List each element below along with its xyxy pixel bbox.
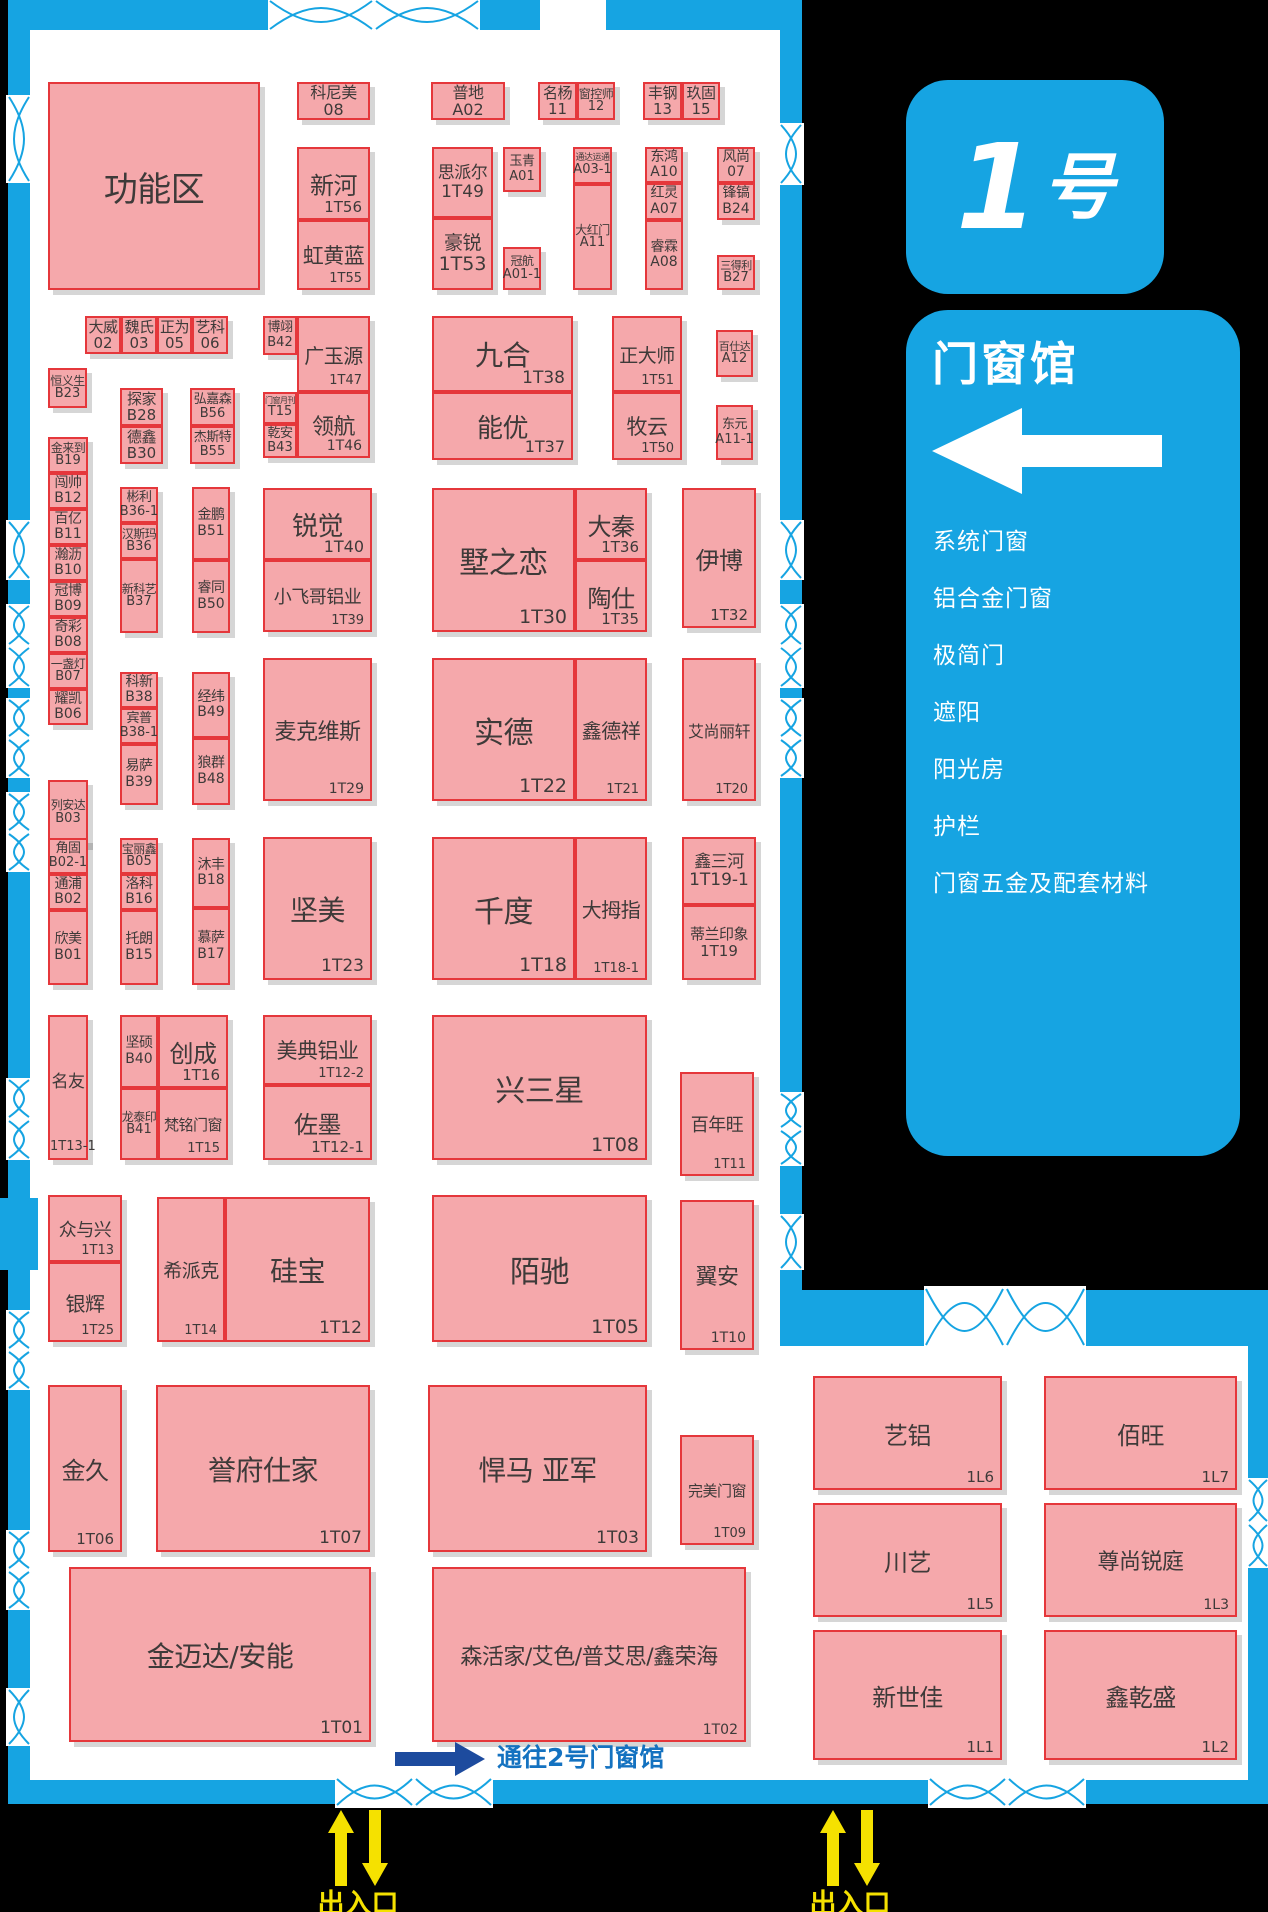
booth-1T40: 锐觉1T40 — [263, 488, 372, 560]
wall — [1086, 1290, 1252, 1346]
booth-name: 睿同 — [198, 581, 225, 596]
booth-code: 1T20 — [715, 782, 748, 797]
booth-code: 03 — [129, 335, 148, 351]
booth-code: 1T23 — [321, 956, 364, 976]
booth-1T02: 森活家/艾色/普艾思/鑫荣海1T02 — [432, 1567, 746, 1742]
booth-code: 1T47 — [329, 373, 362, 388]
exhibition-floor-plan: 1 号 门窗馆 系统门窗铝合金门窗极简门遮阳阳光房护栏门窗五金及配套材料 通往2… — [0, 0, 1268, 1912]
booth-code: B28 — [127, 407, 156, 423]
booth-B15: 托朗B15 — [120, 910, 158, 985]
booth-code: B23 — [55, 387, 80, 401]
booth-name: 艺科 — [195, 319, 224, 335]
booth-13: 丰钢13 — [643, 82, 682, 120]
booth-1T08: 兴三星1T08 — [432, 1015, 647, 1160]
booth-1T19: 蒂兰印象1T19 — [682, 905, 756, 980]
booth-code: 1T15 — [187, 1141, 220, 1156]
booth-B38: 科新B38 — [120, 672, 158, 708]
booth-name: 森活家/艾色/普艾思/鑫荣海 — [434, 1569, 744, 1740]
booth-code: 1L5 — [967, 1595, 994, 1613]
hall-number: 1 — [956, 128, 1038, 246]
booth-name: 鑫德祥 — [577, 660, 645, 799]
door-opening — [6, 520, 32, 580]
door-opening — [778, 520, 804, 580]
door-opening — [6, 1530, 32, 1610]
door-opening — [6, 95, 32, 183]
booth-1T18-1: 大拇指1T18-1 — [575, 837, 647, 980]
booth-code: 1L1 — [967, 1738, 994, 1756]
booth-1T38: 九合1T38 — [432, 316, 573, 392]
booth-name: 宾普 — [126, 712, 151, 726]
door-opening — [335, 1776, 493, 1808]
booth-code: B09 — [54, 599, 81, 614]
booth-name: 科新 — [126, 675, 153, 690]
booth-B18: 沐丰B18 — [192, 838, 230, 908]
booth-1T47: 广玉源1T47 — [297, 316, 370, 392]
booth-name: 风尚 — [723, 150, 750, 165]
booth-code: 1T11 — [713, 1157, 746, 1172]
booth-B56: 弘嘉森B56 — [190, 388, 235, 426]
down-arrow-icon — [854, 1810, 880, 1886]
booth-B55: 杰斯特B55 — [190, 426, 235, 464]
booth-code: B50 — [197, 597, 224, 612]
booth-name: 名友 — [50, 1017, 86, 1142]
booth-code: 06 — [200, 335, 219, 351]
booth-B19: 金来到B19 — [48, 437, 88, 473]
booth-code: 1T37 — [525, 437, 565, 456]
booth-T15: 门窗月刊T15 — [263, 392, 297, 424]
booth-A01-1: 冠航A01-1 — [503, 247, 541, 290]
hall-info-panel: 门窗馆 系统门窗铝合金门窗极简门遮阳阳光房护栏门窗五金及配套材料 — [906, 310, 1240, 1156]
booth-02: 大威02 — [85, 316, 121, 354]
booth-A03-1: 通达运通A03-1 — [573, 147, 612, 184]
booth-B01: 欣美B01 — [48, 910, 88, 985]
booth-1L3: 尊尚锐庭1L3 — [1044, 1503, 1237, 1617]
booth-name: 冠博 — [55, 584, 82, 599]
booth-code: 1T38 — [522, 368, 565, 388]
booth-B27: 三得利B27 — [717, 255, 755, 290]
booth-code: A11 — [580, 236, 605, 250]
booth-code: A01-1 — [503, 268, 541, 282]
booth-code: 1L3 — [1203, 1597, 1229, 1613]
booth-code: 1T09 — [713, 1526, 746, 1541]
booth-code: 02 — [93, 335, 112, 351]
door-opening — [6, 1078, 32, 1160]
booth-code: 15 — [691, 101, 710, 117]
booth-code: A07 — [650, 202, 677, 217]
hall-number-suffix: 号 — [1042, 151, 1114, 223]
booth-code: 1T36 — [601, 538, 639, 556]
booth-1T23: 坚美1T23 — [263, 837, 372, 980]
booth-code: A12 — [722, 352, 747, 366]
booth-1T13-1: 名友1T13-1 — [48, 1015, 88, 1160]
booth-1T35: 陶仕1T35 — [575, 560, 647, 632]
booth-code: 11 — [548, 101, 567, 117]
booth-1T25: 银辉1T25 — [48, 1262, 122, 1342]
booth-code: B43 — [267, 441, 292, 455]
booth-06: 艺科06 — [192, 316, 228, 354]
booth-name: 坚硕 — [126, 1036, 153, 1051]
booth-name: 欣美 — [55, 932, 82, 947]
booth-code: 1T40 — [324, 537, 364, 556]
booth-code: B51 — [197, 524, 224, 539]
booth-code: 1T21 — [606, 782, 639, 797]
booth-code: 1T13-1 — [50, 1139, 86, 1154]
booth-code: 1T55 — [329, 271, 362, 286]
booth-1T11: 百年旺1T11 — [680, 1072, 754, 1176]
booth-name: 乾安 — [267, 427, 292, 441]
booth-code: B40 — [125, 1052, 152, 1067]
booth-code: B11 — [54, 527, 81, 542]
category-item: 铝合金门窗 — [933, 579, 1053, 613]
booth-code: A11-1 — [715, 433, 753, 447]
booth-B05: 宝丽鑫B05 — [120, 838, 158, 874]
booth-1L6: 艺铝1L6 — [813, 1376, 1002, 1490]
booth-B07: 一盏灯B07 — [48, 653, 88, 689]
booth-1T12-1: 佐墨1T12-1 — [263, 1085, 372, 1160]
booth-1T55: 虹黄蓝1T55 — [297, 220, 370, 290]
booth-08: 科尼美08 — [297, 82, 370, 120]
booth-name: 正为 — [160, 319, 189, 335]
category-item: 护栏 — [933, 807, 981, 841]
booth-name: 易萨 — [126, 759, 153, 774]
door-opening — [6, 1688, 32, 1746]
booth-code: B07 — [55, 670, 80, 684]
booth-code: B27 — [723, 271, 748, 285]
booth-code: B02-1 — [49, 856, 87, 870]
booth-1T30: 墅之恋1T30 — [432, 488, 575, 632]
booth-name: 金鹏 — [198, 508, 225, 523]
booth-B10: 瀚沥B10 — [48, 545, 88, 581]
booth-1T01: 金迈达/安能1T01 — [69, 1567, 371, 1742]
booth-code: 1T53 — [439, 254, 487, 275]
booth-name: 慕萨 — [198, 931, 225, 946]
door-opening — [778, 123, 804, 185]
booth-code: 1L7 — [1202, 1468, 1229, 1486]
booth-B38-1: 宾普B38-1 — [120, 708, 158, 744]
booth-name: 锋镐 — [723, 186, 750, 201]
booth-B02-1: 角固B02-1 — [48, 838, 88, 874]
booth-1T14: 希派克1T14 — [157, 1197, 225, 1342]
booth-12: 窗控师12 — [577, 82, 615, 120]
booth-code: T15 — [268, 405, 292, 419]
booth-name: 豪锐 — [444, 233, 481, 254]
booth-code: 1T50 — [641, 441, 674, 456]
booth-code: B39 — [125, 775, 152, 790]
door-opening — [540, 0, 606, 32]
booth-name: 丰钢 — [648, 85, 677, 101]
booth-1T05: 陌驰1T05 — [432, 1195, 647, 1342]
entrance-label: 出入口 — [800, 1882, 900, 1912]
booth-B49: 经纬B49 — [192, 672, 230, 738]
booth-B43: 乾安B43 — [263, 424, 297, 458]
booth-code: 1T46 — [327, 438, 362, 454]
booth-code: B02 — [54, 892, 81, 907]
booth-B23: 恒义生B23 — [48, 368, 87, 408]
door-opening — [6, 698, 32, 778]
booth-code: 1T35 — [601, 610, 639, 628]
booth-1T10: 翼安1T10 — [680, 1200, 754, 1350]
booth-B24: 锋镐B24 — [717, 183, 755, 220]
booth-A10: 东鸿A10 — [645, 147, 683, 183]
booth-code: 1L2 — [1202, 1738, 1229, 1756]
booth-name: 角固 — [55, 842, 80, 856]
booth-name: 誉府仕家 — [158, 1387, 368, 1550]
booth-code: A03-1 — [573, 163, 611, 177]
booth-1T12-2: 美典铝业1T12-2 — [263, 1015, 372, 1085]
booth-code: B30 — [127, 445, 156, 461]
wall — [780, 1290, 924, 1346]
booth-code: 13 — [653, 101, 672, 117]
booth-name: 杰斯特 — [194, 431, 232, 445]
booth-name: 大拇指 — [577, 839, 645, 978]
booth-B51: 金鹏B51 — [192, 487, 230, 560]
booth-1L7: 佰旺1L7 — [1044, 1376, 1237, 1490]
booth-name: 红灵 — [651, 186, 678, 201]
booth-name: 金久 — [50, 1387, 120, 1550]
booth-code: B38 — [125, 690, 152, 705]
booth-code: 1T12 — [319, 1318, 362, 1338]
booth-03: 魏氏03 — [121, 316, 157, 354]
booth-code: 1T19 — [700, 943, 738, 959]
booth-code: B49 — [197, 705, 224, 720]
booth-code: 1T14 — [184, 1323, 217, 1338]
booth-B41: 龙泰印B41 — [120, 1088, 158, 1160]
booth-code: B41 — [126, 1123, 151, 1137]
booth-code: B24 — [722, 202, 749, 217]
booth-name: 通浦 — [55, 877, 82, 892]
booth-code: B18 — [197, 873, 224, 888]
booth-code: B06 — [54, 707, 81, 722]
booth-name: 科尼美 — [310, 84, 357, 101]
wall — [8, 0, 30, 1782]
booth-name: 德鑫 — [127, 429, 156, 445]
booth-code: 1T18 — [519, 954, 567, 976]
booth-code: A10 — [650, 165, 677, 180]
booth-name: 冠航 — [510, 255, 533, 268]
booth-B50: 睿同B50 — [192, 560, 230, 633]
booth-B48: 狼群B48 — [192, 738, 230, 805]
booth-code: 1L6 — [967, 1468, 994, 1486]
booth-B11: 百亿B11 — [48, 509, 88, 545]
left-arrow-icon — [932, 404, 1164, 498]
booth-1L1: 新世佳1L1 — [813, 1630, 1002, 1760]
door-opening — [778, 604, 804, 688]
booth-name: 鑫三河 — [694, 853, 744, 871]
booth-code: 1T16 — [182, 1066, 220, 1084]
booth-code: 1T13 — [81, 1243, 114, 1258]
booth-B40: 坚硕B40 — [120, 1015, 158, 1088]
booth-A02: 普地A02 — [431, 82, 505, 120]
booth-code: A02 — [452, 101, 483, 118]
booth-B16: 洛科B16 — [120, 874, 158, 910]
booth-name: 博翊 — [267, 321, 292, 335]
door-opening — [6, 792, 32, 872]
door-opening — [6, 1310, 32, 1390]
booth-name: 名杨 — [543, 85, 572, 101]
booth-code: B10 — [54, 563, 81, 578]
booth-name: 弘嘉森 — [194, 393, 232, 407]
booth-name: 经纬 — [198, 690, 225, 705]
booth-code: B01 — [54, 948, 81, 963]
booth-name: 金迈达/安能 — [71, 1569, 369, 1740]
booth-1T09: 完美门窗1T09 — [680, 1435, 754, 1545]
booth-B03: 列安达B03 — [48, 780, 88, 845]
booth-name: 东鸿 — [651, 150, 678, 165]
booth-name: 东元 — [722, 418, 747, 432]
booth-1T36: 大秦1T36 — [575, 488, 647, 560]
category-item: 遮阳 — [933, 693, 981, 727]
booth-A07: 红灵A07 — [645, 183, 683, 220]
booth-功能区: 功能区 — [48, 82, 260, 290]
booth-code: 1T10 — [711, 1330, 746, 1346]
booth-A08: 睿霖A08 — [645, 220, 683, 290]
booth-code: B19 — [55, 454, 80, 468]
booth-name: 瀚沥 — [55, 548, 82, 563]
booth-code: A08 — [650, 255, 677, 270]
booth-B12: 闯帅B12 — [48, 473, 88, 509]
booth-1T37: 能优1T37 — [432, 392, 573, 460]
booth-05: 正为05 — [157, 316, 192, 354]
category-item: 阳光房 — [933, 750, 1005, 784]
booth-code: 1T02 — [703, 1722, 738, 1738]
booth-1T49: 思派尔1T49 — [432, 147, 493, 218]
booth-code: 07 — [727, 165, 745, 180]
down-arrow-icon — [362, 1810, 388, 1886]
booth-code: 1T19-1 — [689, 871, 749, 889]
booth-code: 1T07 — [319, 1528, 362, 1548]
booth-code: B05 — [126, 855, 151, 869]
booth-B02: 通浦B02 — [48, 874, 88, 910]
booth-name: 翼安 — [682, 1202, 752, 1348]
door-opening — [1246, 1478, 1268, 1568]
booth-code: B15 — [125, 948, 152, 963]
booth-B30: 德鑫B30 — [120, 426, 163, 464]
booth-A11: 大红门A11 — [573, 184, 612, 290]
booth-name: 悍马 亚军 — [430, 1387, 645, 1550]
hall-number-badge: 1 号 — [906, 80, 1164, 294]
booth-name: 普地 — [452, 84, 483, 101]
booth-name: 艾尚丽轩 — [684, 660, 754, 799]
booth-1T53: 豪锐1T53 — [432, 218, 493, 290]
booth-1T16: 创成1T16 — [158, 1015, 228, 1088]
booth-code: B36-1 — [120, 505, 158, 519]
booth-name: 魏氏 — [124, 319, 153, 335]
booth-name: 闯帅 — [55, 476, 82, 491]
booth-1T15: 梵铭门窗1T15 — [158, 1088, 228, 1160]
hall-name: 门窗馆 — [932, 328, 1079, 394]
door-opening — [778, 1214, 804, 1270]
booth-name: 托朗 — [126, 932, 153, 947]
booth-code: A01 — [509, 170, 534, 184]
booth-name: 沐丰 — [198, 858, 225, 873]
category-item: 门窗五金及配套材料 — [933, 864, 1149, 898]
background-area — [0, 1804, 1268, 1912]
booth-code: 1T01 — [320, 1718, 363, 1738]
booth-A11-1: 东元A11-1 — [716, 405, 753, 460]
passage-note: 通往2号门窗馆 — [497, 1738, 664, 1774]
booth-name: 百亿 — [55, 512, 82, 527]
booth-1T29: 麦克维斯1T29 — [263, 658, 372, 801]
booth-code: 1T12-2 — [318, 1066, 364, 1081]
booth-code: 1T49 — [441, 183, 484, 201]
category-item: 系统门窗 — [933, 522, 1029, 556]
booth-1T19-1: 鑫三河1T19-1 — [682, 837, 756, 905]
booth-name: 大威 — [88, 319, 117, 335]
booth-code: B42 — [267, 336, 292, 350]
door-opening — [778, 698, 804, 778]
booth-name: 奇彩 — [55, 620, 82, 635]
booth-code: B38-1 — [120, 726, 158, 740]
booth-1T50: 牧云1T50 — [612, 392, 682, 460]
booth-name: 玖固 — [686, 85, 715, 101]
booth-name: 彬利 — [126, 491, 151, 505]
booth-code: 1T51 — [641, 373, 674, 388]
booth-code: 1T56 — [324, 198, 362, 216]
booth-code: B17 — [197, 947, 224, 962]
booth-B06: 耀凯B06 — [48, 689, 88, 725]
booth-code: B37 — [126, 595, 151, 609]
booth-code: B56 — [200, 407, 225, 421]
booth-code: 05 — [165, 335, 184, 351]
booth-name: 耀凯 — [55, 692, 82, 707]
booth-B42: 博翊B42 — [263, 316, 297, 355]
up-arrow-icon — [328, 1810, 354, 1886]
booth-15: 玖固15 — [682, 82, 720, 120]
booth-A01: 玉青A01 — [503, 147, 541, 192]
door-opening — [6, 604, 32, 688]
booth-code: 1T06 — [76, 1530, 114, 1548]
booth-code: B12 — [54, 491, 81, 506]
booth-code: 1T29 — [329, 781, 364, 797]
booth-code: 1T03 — [596, 1528, 639, 1548]
booth-1T03: 悍马 亚军1T03 — [428, 1385, 647, 1552]
door-opening — [924, 1286, 1086, 1348]
booth-code: 1T18-1 — [593, 961, 639, 976]
passage-arrow-icon — [395, 1740, 487, 1778]
booth-name: 蒂兰印象 — [690, 926, 748, 942]
booth-07: 风尚07 — [717, 147, 755, 183]
booth-code: 1T39 — [331, 613, 364, 628]
booth-name: 希派克 — [159, 1199, 223, 1340]
booth-name: 思派尔 — [438, 164, 488, 182]
wall — [0, 1198, 38, 1270]
booth-B28: 探家B28 — [120, 388, 163, 426]
booth-1T13: 众与兴1T13 — [48, 1195, 122, 1262]
booth-11: 名杨11 — [538, 82, 577, 120]
booth-B09: 冠博B09 — [48, 581, 88, 617]
booth-code: 1T32 — [710, 606, 748, 624]
booth-name: 列安达 — [51, 799, 86, 812]
booth-1T18: 千度1T18 — [432, 837, 575, 980]
booth-code: B08 — [54, 635, 81, 650]
booth-code: 1T12-1 — [311, 1138, 364, 1156]
booth-code: B48 — [197, 772, 224, 787]
booth-A12: 百仕达A12 — [716, 330, 753, 377]
booth-name: 玉青 — [509, 155, 534, 169]
booth-B08: 奇彩B08 — [48, 617, 88, 653]
booth-1T21: 鑫德祥1T21 — [575, 658, 647, 801]
booth-1T56: 新河1T56 — [297, 147, 370, 220]
booth-code: 1T30 — [519, 606, 567, 628]
booth-1T39: 小飞哥铝业1T39 — [263, 560, 372, 632]
booth-1T12: 硅宝1T12 — [225, 1197, 370, 1342]
booth-code: 1T25 — [81, 1323, 114, 1338]
booth-1T06: 金久1T06 — [48, 1385, 122, 1552]
booth-code: 1T22 — [519, 775, 567, 797]
booth-1T32: 伊博1T32 — [682, 488, 756, 628]
booth-name: 睿霖 — [651, 240, 678, 255]
booth-name: 洛科 — [126, 877, 153, 892]
